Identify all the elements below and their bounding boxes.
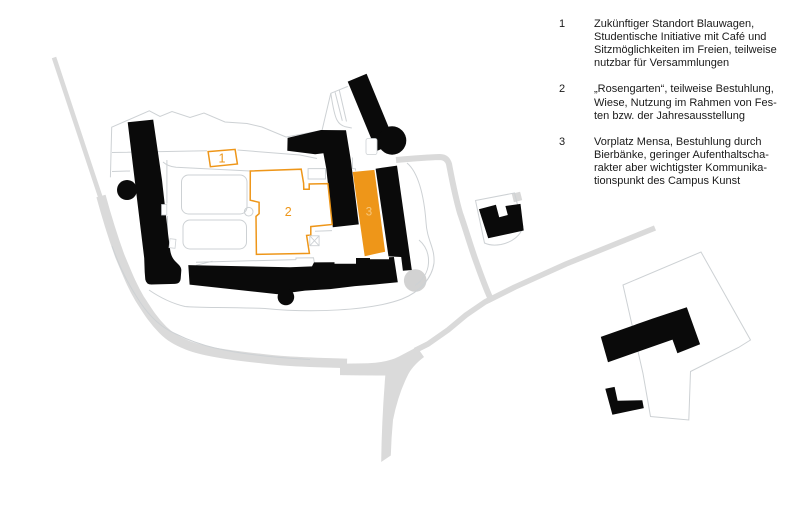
svg-text:3: 3 — [366, 207, 372, 219]
svg-text:2: 2 — [285, 205, 292, 219]
svg-text:1: 1 — [219, 151, 226, 165]
